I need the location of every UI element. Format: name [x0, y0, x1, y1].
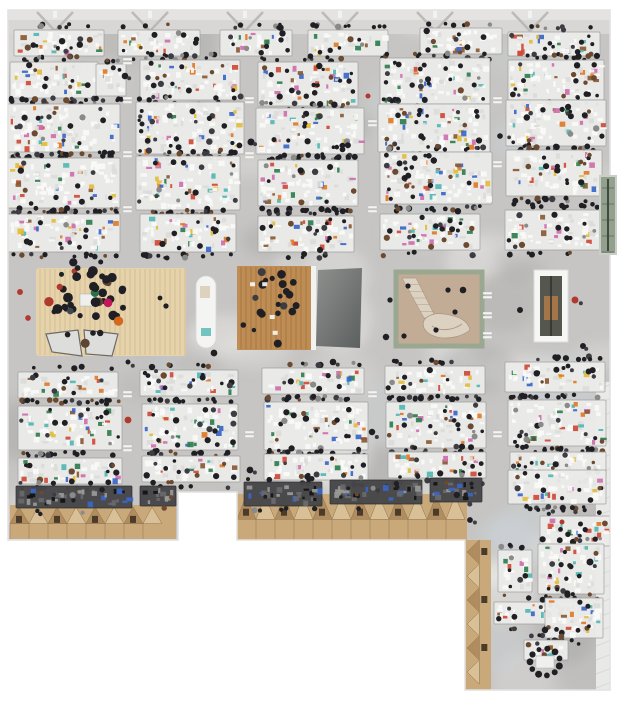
- aisle-marker: [483, 296, 492, 299]
- desk-clutter: [269, 441, 273, 444]
- desk-clutter: [233, 128, 236, 132]
- desk-clutter: [36, 82, 42, 85]
- desk-clutter: [145, 82, 151, 85]
- desk-clutter: [58, 221, 62, 223]
- person: [426, 145, 430, 149]
- person: [316, 386, 322, 392]
- desk-clutter: [47, 108, 52, 111]
- person: [201, 373, 204, 376]
- desk-cluster: [8, 150, 120, 217]
- desk-clutter: [269, 91, 275, 97]
- desk-clutter: [340, 243, 346, 245]
- desk-clutter: [205, 195, 209, 200]
- desk-clutter: [315, 46, 319, 49]
- person: [64, 205, 70, 211]
- desk-clutter: [557, 43, 561, 46]
- desk-clutter: [508, 219, 512, 221]
- desk-clutter: [330, 244, 335, 249]
- desk-clutter: [533, 84, 536, 87]
- desk-clutter: [147, 412, 152, 417]
- person: [387, 297, 392, 302]
- person: [151, 413, 155, 417]
- desk-clutter: [513, 123, 516, 127]
- ring-table: [536, 656, 554, 668]
- person: [67, 54, 72, 59]
- person: [341, 103, 345, 107]
- person: [269, 72, 274, 77]
- desk-clutter: [272, 35, 274, 39]
- person: [227, 383, 233, 389]
- desk-clutter: [84, 380, 88, 385]
- person: [259, 100, 265, 106]
- desk-clutter: [151, 231, 154, 237]
- desk-clutter: [316, 189, 320, 192]
- person: [92, 254, 98, 260]
- person: [468, 444, 474, 450]
- person: [338, 56, 344, 62]
- person: [268, 448, 272, 452]
- person: [595, 395, 601, 401]
- desk-clutter: [511, 83, 515, 86]
- desk-clutter: [557, 402, 562, 404]
- desk-clutter: [108, 220, 113, 223]
- person: [472, 83, 477, 88]
- desk-clutter: [415, 62, 419, 66]
- person: [233, 198, 238, 203]
- desk-clutter: [330, 110, 334, 116]
- desk-clutter: [234, 39, 237, 42]
- paper: [262, 282, 267, 286]
- person: [350, 72, 353, 75]
- dormer-window: [92, 516, 98, 523]
- desk-clutter: [420, 93, 423, 98]
- desk-clutter: [37, 186, 43, 189]
- desk-clutter: [113, 221, 119, 226]
- desk-clutter: [334, 162, 338, 167]
- desk-clutter: [75, 83, 78, 89]
- person: [594, 53, 600, 59]
- aisle-marker: [493, 165, 502, 168]
- person: [237, 143, 243, 149]
- desk-clutter: [259, 147, 266, 152]
- desk-clutter: [77, 472, 79, 478]
- person: [467, 502, 472, 507]
- desk-clutter: [221, 241, 225, 246]
- desk-clutter: [70, 381, 76, 384]
- desk-clutter: [464, 31, 467, 35]
- desk-clutter: [425, 225, 427, 230]
- person: [467, 517, 473, 523]
- person: [449, 396, 455, 402]
- person: [515, 485, 521, 491]
- person: [63, 152, 67, 156]
- aisle-marker: [493, 97, 502, 100]
- desk-clutter: [146, 128, 149, 132]
- desk-clutter: [195, 185, 201, 189]
- person: [29, 201, 34, 206]
- desk-clutter: [586, 438, 590, 444]
- desk-clutter: [272, 188, 275, 191]
- desk-clutter: [519, 180, 521, 184]
- desk-clutter: [24, 391, 27, 397]
- person: [563, 355, 569, 361]
- desk-clutter: [222, 218, 226, 223]
- person: [140, 122, 145, 127]
- desk-clutter: [402, 63, 405, 68]
- desk-clutter: [434, 129, 438, 133]
- person: [282, 381, 286, 385]
- person: [556, 418, 561, 423]
- person: [548, 41, 553, 46]
- office-aerial-photo: Aerial top-down photograph of a large op…: [0, 0, 620, 701]
- desk-clutter: [146, 190, 153, 194]
- desk-clutter: [395, 234, 399, 236]
- desk-clutter: [517, 43, 519, 46]
- person: [593, 537, 598, 542]
- desk-clutter: [234, 181, 240, 184]
- person: [552, 53, 557, 58]
- desk-clutter: [176, 72, 181, 78]
- desk-clutter: [272, 175, 275, 180]
- desk-clutter: [569, 457, 573, 460]
- desk-clutter: [106, 111, 109, 115]
- person: [338, 397, 343, 402]
- desk-clutter: [396, 371, 398, 376]
- desk-clutter: [470, 486, 473, 489]
- desk-clutter: [318, 458, 323, 461]
- person: [46, 114, 51, 119]
- desk-clutter: [573, 550, 576, 554]
- desk-clutter: [50, 67, 54, 69]
- person: [32, 130, 38, 136]
- person: [336, 363, 340, 367]
- desk-cluster: [380, 144, 492, 212]
- desk-clutter: [433, 45, 438, 48]
- person: [154, 448, 160, 454]
- desk-clutter: [550, 571, 553, 574]
- person: [568, 113, 574, 119]
- person: [466, 147, 470, 151]
- desk-clutter: [342, 467, 348, 472]
- desk-clutter: [309, 182, 313, 188]
- person: [458, 87, 464, 93]
- office-aerial-photo-canvas: [0, 0, 620, 701]
- desk-cluster: [264, 394, 368, 459]
- desk-clutter: [545, 73, 549, 76]
- desk-clutter: [434, 109, 440, 115]
- desk-clutter: [519, 66, 521, 71]
- desk-clutter: [334, 43, 339, 47]
- desk-cluster: [96, 59, 126, 103]
- desk-clutter: [233, 173, 238, 179]
- desk-clutter: [41, 197, 44, 200]
- person: [138, 119, 141, 122]
- person: [44, 76, 49, 81]
- desk-clutter: [521, 234, 526, 238]
- desk-clutter: [510, 403, 513, 406]
- person: [59, 38, 65, 44]
- person: [425, 47, 430, 52]
- desk-clutter: [54, 106, 59, 109]
- desk-clutter: [160, 428, 165, 433]
- person: [108, 196, 112, 200]
- person: [156, 187, 162, 193]
- person: [564, 592, 570, 598]
- desk-clutter: [453, 113, 456, 116]
- desk-clutter: [454, 235, 456, 237]
- person: [169, 495, 173, 499]
- aisle-marker: [123, 391, 132, 394]
- person: [228, 35, 233, 40]
- person: [70, 492, 76, 498]
- desk-clutter: [178, 375, 183, 379]
- person: [535, 641, 539, 645]
- desk-clutter: [197, 416, 203, 421]
- person: [74, 54, 79, 59]
- person: [75, 265, 81, 271]
- desk-clutter: [55, 184, 58, 190]
- desk-clutter: [479, 67, 482, 69]
- desk-clutter: [165, 40, 171, 43]
- desk-clutter: [300, 237, 302, 241]
- person: [281, 418, 287, 424]
- desk-clutter: [535, 461, 538, 466]
- desk-clutter: [429, 239, 434, 244]
- desk-clutter: [457, 93, 462, 95]
- desk-clutter: [175, 86, 177, 89]
- desk-clutter: [26, 423, 28, 428]
- person: [451, 23, 456, 28]
- desk-clutter: [105, 195, 107, 201]
- desk-clutter: [555, 524, 560, 528]
- desk-clutter: [449, 61, 455, 66]
- desk-clutter: [553, 411, 556, 416]
- desk-clutter: [55, 440, 58, 443]
- desk-clutter: [437, 44, 443, 46]
- desk-clutter: [433, 482, 437, 485]
- desk-clutter: [396, 189, 400, 191]
- person: [81, 511, 85, 515]
- desk-clutter: [122, 501, 127, 503]
- person: [275, 311, 281, 317]
- desk-clutter: [524, 481, 530, 484]
- desk-clutter: [477, 88, 480, 91]
- desk-clutter: [344, 438, 350, 442]
- desk-surface: [14, 30, 104, 56]
- person: [346, 397, 350, 401]
- desk-clutter: [523, 371, 526, 377]
- desk-clutter: [467, 73, 471, 77]
- person: [77, 141, 81, 145]
- desk-clutter: [273, 239, 279, 243]
- person: [153, 161, 158, 166]
- desk-clutter: [108, 228, 113, 230]
- desk-clutter: [590, 575, 592, 579]
- desk-clutter: [578, 529, 584, 534]
- desk-clutter: [310, 112, 314, 116]
- person: [410, 165, 415, 170]
- person: [408, 382, 412, 386]
- person: [591, 75, 597, 81]
- person: [156, 254, 160, 258]
- desk-clutter: [467, 30, 471, 34]
- desk-clutter: [232, 432, 234, 435]
- person: [169, 480, 173, 484]
- desk-clutter: [542, 131, 546, 135]
- person: [540, 107, 545, 112]
- desk-clutter: [573, 561, 576, 564]
- desk-clutter: [543, 562, 546, 567]
- desk-clutter: [438, 91, 444, 94]
- person: [407, 235, 412, 240]
- desk-clutter: [455, 164, 461, 167]
- desk-clutter: [182, 43, 185, 45]
- desk-clutter: [81, 494, 83, 499]
- desk-clutter: [92, 491, 97, 496]
- desk-clutter: [267, 487, 269, 492]
- person: [154, 194, 158, 198]
- person: [98, 289, 107, 298]
- person: [404, 183, 409, 188]
- desk-clutter: [64, 191, 70, 194]
- person: [203, 407, 209, 413]
- desk-clutter: [450, 371, 453, 374]
- person: [191, 209, 195, 213]
- person: [258, 508, 262, 512]
- person: [202, 151, 207, 156]
- person: [462, 461, 467, 466]
- person: [211, 407, 216, 412]
- person: [270, 276, 275, 281]
- desk-clutter: [460, 236, 466, 239]
- desk-clutter: [107, 430, 111, 436]
- desk-clutter: [533, 76, 538, 78]
- person: [279, 508, 283, 512]
- desk-clutter: [560, 170, 564, 175]
- dormer-window: [481, 644, 487, 651]
- person: [269, 224, 273, 228]
- desk-clutter: [423, 166, 428, 169]
- person: [10, 99, 15, 104]
- desk-clutter: [186, 85, 190, 87]
- desk-clutter: [584, 128, 589, 132]
- desk-clutter: [155, 412, 160, 417]
- person: [459, 221, 463, 225]
- desk-clutter: [111, 413, 114, 416]
- person: [259, 50, 264, 55]
- desk-clutter: [112, 139, 115, 141]
- desk-clutter: [72, 408, 76, 412]
- person: [154, 369, 158, 373]
- person: [387, 187, 391, 191]
- desk-clutter: [299, 381, 303, 385]
- desk-clutter: [91, 161, 97, 167]
- desk-clutter: [449, 488, 455, 491]
- desk-clutter: [443, 456, 448, 462]
- desk-clutter: [325, 176, 331, 179]
- desk-clutter: [18, 50, 23, 53]
- desk-clutter: [288, 243, 291, 246]
- person: [544, 594, 548, 598]
- desk-clutter: [599, 383, 602, 386]
- person: [315, 229, 319, 233]
- desk-clutter: [51, 175, 57, 179]
- desk-clutter: [52, 83, 57, 86]
- person: [85, 82, 91, 88]
- desk-clutter: [86, 220, 92, 225]
- person: [389, 197, 393, 201]
- desk-clutter: [87, 390, 92, 395]
- desk-clutter: [383, 224, 386, 230]
- person: [337, 384, 342, 389]
- desk-clutter: [558, 176, 561, 180]
- desk-clutter: [267, 149, 271, 153]
- desk-clutter: [223, 89, 225, 92]
- desk-clutter: [92, 139, 96, 144]
- desk-clutter: [169, 66, 174, 69]
- person: [63, 222, 69, 228]
- desk-clutter: [291, 78, 294, 82]
- desk-clutter: [70, 233, 74, 238]
- desk-clutter: [401, 134, 404, 140]
- desk-clutter: [416, 389, 421, 394]
- floor-patch: [11, 649, 84, 696]
- desk-clutter: [427, 472, 433, 477]
- desk-clutter: [450, 141, 456, 143]
- desk-clutter: [103, 69, 108, 74]
- desk-clutter: [270, 240, 273, 243]
- person: [346, 487, 350, 491]
- desk-clutter: [314, 486, 316, 490]
- desk-clutter: [339, 231, 345, 234]
- desk-clutter: [161, 144, 167, 147]
- desk-clutter: [58, 127, 62, 131]
- desk-clutter: [469, 118, 472, 122]
- desk-clutter: [342, 383, 347, 385]
- person: [318, 50, 323, 55]
- desk-clutter: [42, 441, 48, 444]
- person: [588, 137, 591, 140]
- person: [455, 422, 460, 427]
- desk-clutter: [441, 375, 446, 377]
- person: [34, 152, 40, 158]
- desk-clutter: [296, 471, 300, 475]
- person: [98, 260, 103, 265]
- person: [309, 476, 314, 481]
- desk-clutter: [61, 130, 66, 134]
- desk-clutter: [457, 135, 462, 141]
- desk-clutter: [61, 464, 66, 470]
- desk-clutter: [305, 436, 307, 439]
- person: [114, 253, 119, 258]
- person: [401, 385, 406, 390]
- desk-clutter: [433, 77, 440, 83]
- person: [312, 90, 318, 96]
- desk-clutter: [521, 139, 525, 145]
- desk-clutter: [10, 116, 15, 118]
- person: [467, 181, 472, 186]
- person: [265, 395, 271, 401]
- person: [42, 210, 45, 213]
- person: [35, 454, 39, 458]
- person: [517, 307, 523, 313]
- desk-clutter: [503, 559, 508, 564]
- desk-clutter: [440, 384, 443, 388]
- desk-clutter: [419, 89, 422, 91]
- desk-clutter: [200, 85, 205, 90]
- person: [474, 109, 479, 114]
- desk-clutter: [155, 407, 158, 411]
